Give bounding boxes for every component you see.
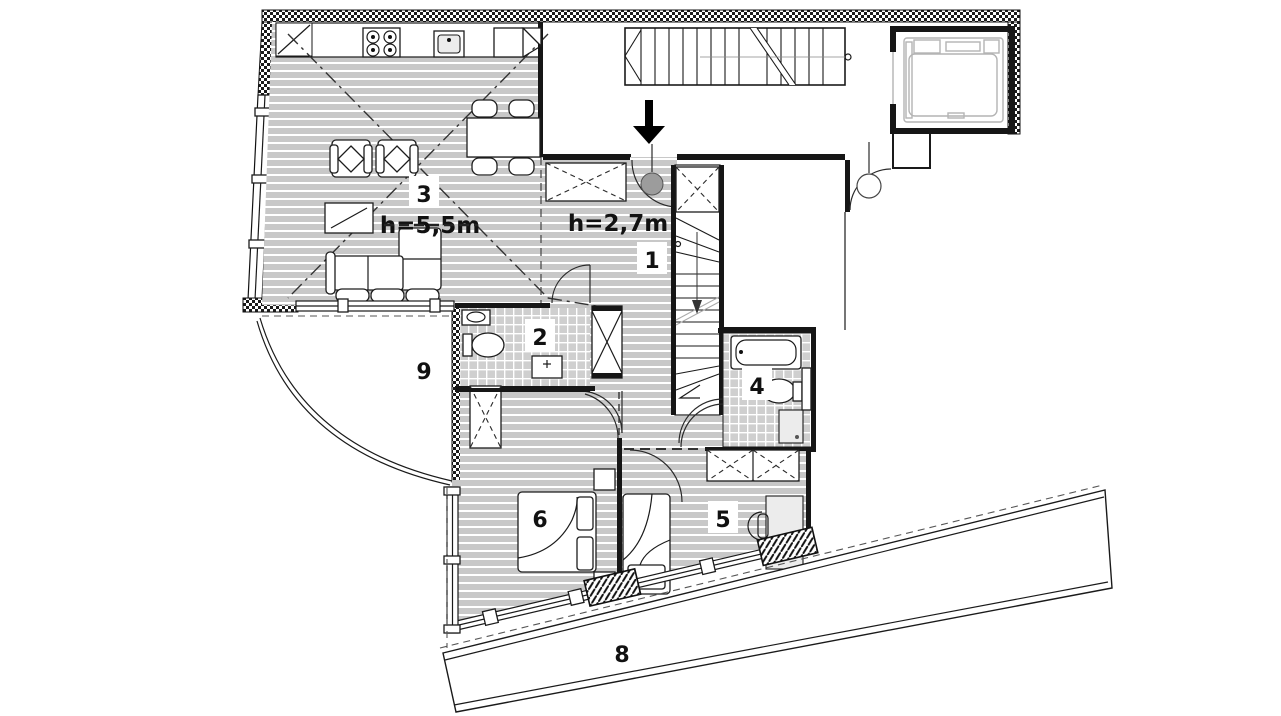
- wc-sink-icon: [462, 310, 490, 325]
- height-label-hall: h=2,7m: [568, 211, 668, 237]
- stair-top-closet: [676, 167, 719, 212]
- room-label-6: 6: [532, 508, 547, 533]
- room-label-2: 2: [532, 326, 547, 351]
- room-label-5: 5: [715, 508, 730, 533]
- hall-wardrobe: [546, 163, 626, 201]
- floor-plan-canvas: { "plan": { "type": "apartment-floor-pla…: [0, 0, 1281, 716]
- coffee-table-icon: [325, 203, 373, 233]
- room-label-9: 9: [416, 360, 431, 385]
- room-label-1: 1: [644, 249, 659, 274]
- floor-plan-drawing: 1 2 3 4 5 6 8 9 h=5,5m h=2,7m: [0, 0, 1281, 716]
- nightstand: [594, 469, 615, 490]
- room-label-3: 3: [416, 183, 431, 208]
- corridor-wardrobe: [470, 386, 501, 448]
- kitchen: [363, 28, 541, 57]
- stairs-common-icon: [625, 28, 851, 85]
- wc-cabinet-icon: [532, 356, 562, 378]
- shaft-box: [592, 306, 622, 378]
- stove-icon: [363, 28, 400, 57]
- armchair-icon: [376, 140, 418, 177]
- interior-stair: [671, 165, 724, 443]
- room-label-8: 8: [614, 643, 629, 668]
- wc-toilet-icon: [463, 333, 504, 357]
- armchair-icon: [330, 140, 372, 177]
- washer-icon: [779, 410, 803, 443]
- room-label-4: 4: [749, 375, 764, 400]
- bedroom5-wardrobes: [707, 450, 799, 481]
- bath-shelf: [802, 368, 811, 410]
- sink-icon: [434, 31, 464, 57]
- bathtub-icon: [731, 336, 801, 369]
